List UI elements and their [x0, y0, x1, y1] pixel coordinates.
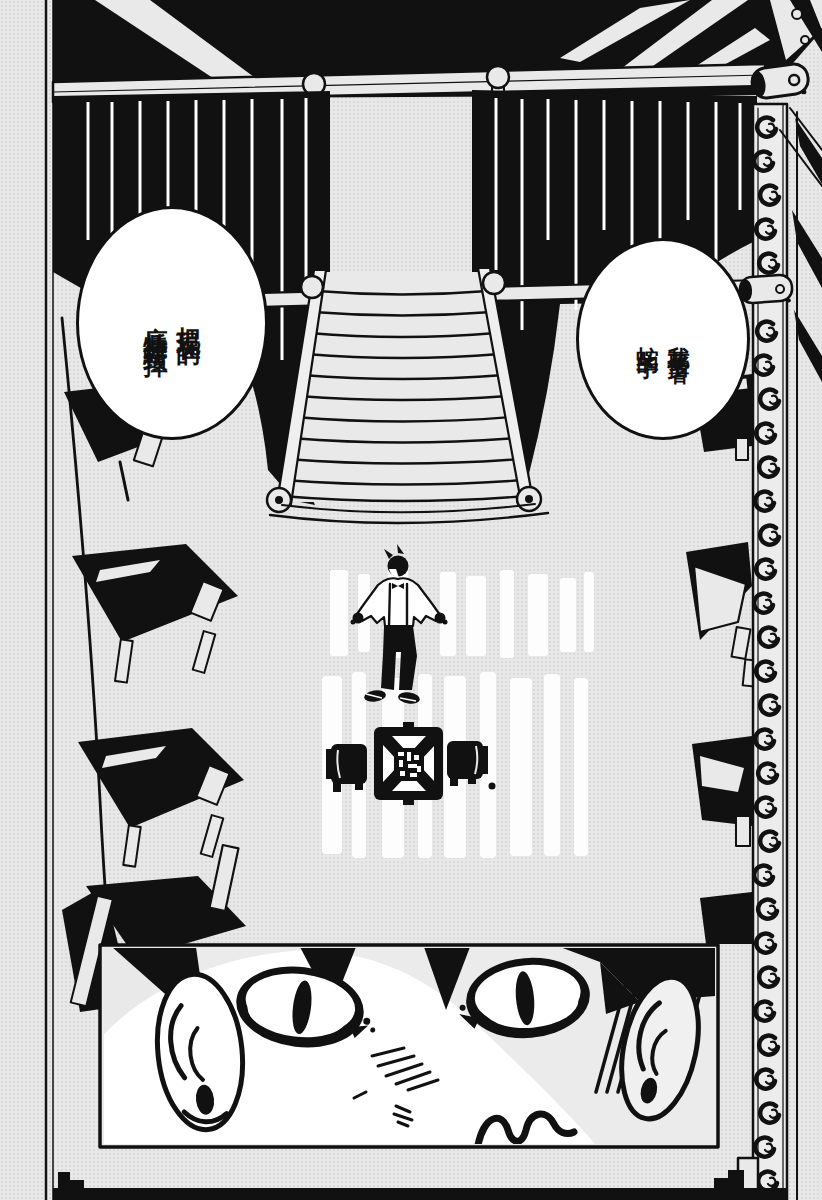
wall-light-fixture [72, 544, 238, 683]
rail-end-joint [739, 274, 793, 306]
speech-text-column: 蛇的手 [637, 329, 659, 344]
ring-table [374, 722, 443, 805]
wall-light-fixture [686, 542, 757, 687]
hall-scene-art [0, 0, 822, 1200]
speech-text-column: 底特律給毀掉 [144, 308, 168, 338]
manga-page: 我要借著 蛇的手 把現在的 底特律給毀掉 [0, 0, 822, 1200]
speech-text-column: 把現在的 [177, 308, 201, 328]
wall-light-fixture [692, 736, 752, 846]
eyes-closeup-panel [100, 945, 718, 1147]
right-wall [686, 374, 757, 944]
wall-light-fixture [700, 892, 752, 944]
speech-bubble-right: 我要借著 蛇的手 [576, 238, 750, 440]
speech-text-column: 我要借著 [668, 329, 690, 349]
spiral-column [738, 104, 822, 1200]
page-border [46, 0, 53, 1200]
speech-bubble-left: 把現在的 底特律給毀掉 [76, 206, 268, 440]
stage-front-edge [53, 1170, 788, 1200]
